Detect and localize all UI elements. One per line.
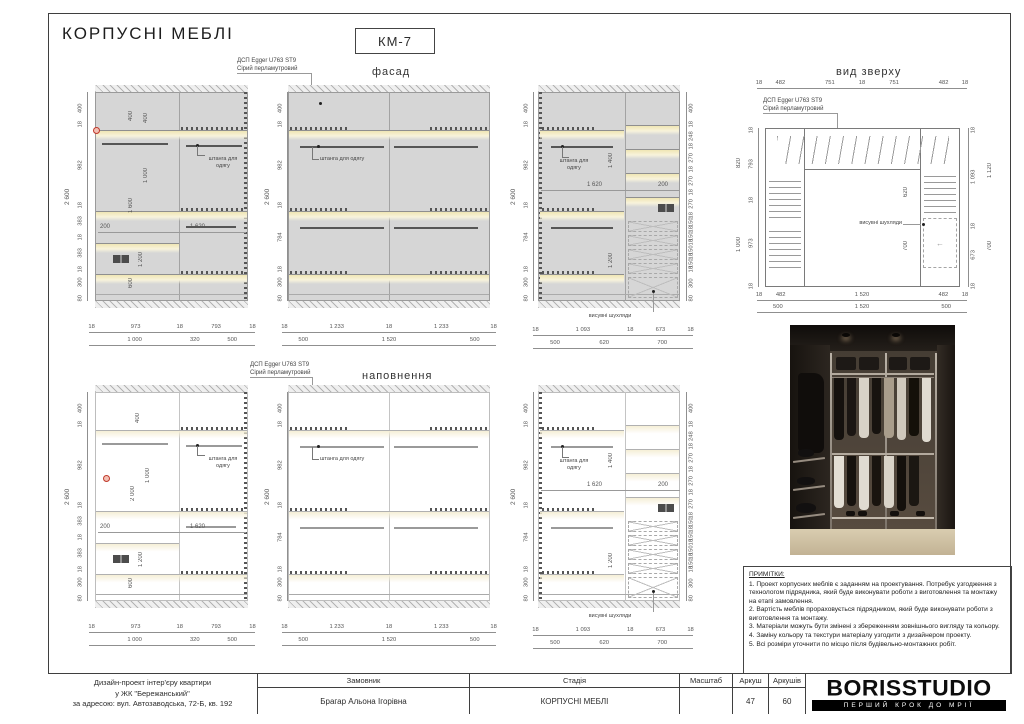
shelf-line	[626, 425, 679, 435]
dimension-label: 18	[688, 328, 693, 335]
material-note: ДСП Egger U763 ST9 Сірий перламутровий	[250, 362, 310, 377]
dim-chain-bottom-2: 500620700	[533, 639, 693, 649]
clothes-rod	[394, 146, 478, 148]
dim-chain-left: 4001898218383183831830080	[76, 92, 88, 301]
shelf-led-band	[626, 149, 679, 159]
dimension-label: 1 093	[538, 328, 628, 335]
dimension-label: 673	[633, 328, 688, 335]
dimension-label: 500	[282, 638, 324, 645]
vertical-divider	[389, 92, 390, 301]
dimension-label: 18	[969, 284, 980, 287]
dimension-label: 673	[969, 227, 980, 284]
shelf-front-edge	[181, 127, 245, 130]
photo-floor	[790, 529, 955, 555]
dim-600: 600	[128, 565, 134, 601]
dim-620: 620	[903, 172, 909, 212]
dim-1000: 1 000	[736, 206, 742, 282]
shelf-line	[626, 449, 679, 459]
dimension-label: 620	[577, 341, 632, 348]
dimension-label: 1 233	[391, 625, 491, 632]
dim-chain-bottom-1: 181 0931867318	[533, 626, 693, 636]
dimension-label: 973	[94, 625, 177, 632]
dimension-label: 1 000	[89, 638, 180, 645]
facade-view-title: фасад	[372, 66, 410, 78]
dimension-label: 300	[76, 270, 87, 294]
dim-chain-bottom-2: 500620700	[533, 339, 693, 349]
shelf-led-band	[289, 130, 489, 140]
ceiling-hatch	[95, 385, 248, 392]
dimension-label: 482	[761, 293, 800, 300]
customer-cell: Замовник Брагар Альона Ігорівна	[258, 674, 470, 714]
shelf-front-edge	[290, 508, 348, 511]
elevation-facade-3: 2 600 40018982187841830080 1 400 1 620 2…	[505, 85, 720, 365]
floor-hatch	[95, 601, 248, 608]
dimension-label: 793	[182, 325, 250, 332]
photo-hanging-coat	[798, 373, 824, 453]
project-description: Дизайн-проект інтер'єру квартириу ЖК "Бе…	[48, 674, 258, 714]
logo-text: BORISSTUDIO	[826, 678, 991, 700]
dim-1400: 1 400	[608, 133, 614, 188]
cabinet-body	[95, 392, 248, 601]
photo-panel	[830, 353, 832, 529]
dimension-label: 400	[276, 92, 287, 124]
photo-shelf	[832, 373, 934, 375]
dimension-label: 482	[761, 81, 800, 88]
dimension-label: 784	[522, 506, 533, 569]
material-line1: ДСП Egger U763 ST9	[250, 362, 310, 370]
photo-render	[790, 325, 955, 555]
side-wall-edge	[539, 92, 542, 301]
rod-label: штанга для одягу	[549, 458, 599, 471]
dimension-label: 18	[963, 81, 967, 88]
shelf-led-band	[289, 211, 489, 221]
scale-value	[680, 688, 732, 714]
dimension-label: 400	[687, 392, 698, 424]
total-height-dim: 2 600	[64, 392, 71, 601]
leader-line	[312, 147, 319, 160]
dim-line	[98, 232, 246, 233]
project-line: Дизайн-проект інтер'єру квартири	[48, 678, 257, 689]
clothes-rod	[102, 443, 168, 445]
photo-storage-box	[859, 357, 879, 370]
dimension-label: 982	[276, 126, 287, 205]
clothes-rod	[551, 227, 613, 229]
total-height-dim: 2 600	[64, 92, 71, 301]
dimension-label: 1 520	[324, 338, 453, 345]
clothes-rod	[102, 143, 168, 145]
dimension-label: 80	[76, 595, 87, 601]
dim-1120: 1 120	[987, 136, 993, 204]
clothes-rod	[186, 445, 242, 447]
dimension-label: 982	[522, 426, 533, 505]
dimension-label: 751	[864, 81, 924, 88]
side-wall-edge	[539, 392, 542, 601]
dimension-label: 500	[533, 641, 577, 648]
sheet-title: КОРПУСНІ МЕБЛІ	[62, 24, 234, 44]
dim-1200: 1 200	[138, 235, 144, 283]
drawers-label-text: висувні шухляди	[560, 613, 660, 620]
photo-storage-box	[836, 357, 856, 370]
dimension-label: 383	[76, 206, 87, 237]
dim-820: 820	[736, 132, 742, 194]
shelf-led-band	[96, 211, 247, 221]
dim-chain-bottom-2: 5001 520500	[757, 303, 967, 313]
note-item: 4. Заміну кольору та текстури матеріалу …	[749, 632, 1006, 641]
shelf-front-edge	[542, 571, 594, 574]
drawer-box	[628, 521, 678, 532]
dimension-label: 80	[522, 295, 533, 301]
dimension-label: 18	[963, 293, 967, 300]
dimension-label: 80	[522, 595, 533, 601]
rod-label: штанга для одягу	[200, 456, 246, 469]
dimension-label: 500	[454, 338, 496, 345]
dim-200: 200	[658, 182, 668, 188]
elevation-filling-3: 2 600 40018982187841830080 1 400 1 620 2…	[505, 385, 720, 665]
drawer-box	[628, 563, 678, 574]
shelf-front-edge	[290, 127, 348, 130]
dim-line	[98, 532, 246, 533]
dim-chain-left: 40018982187841830080	[522, 92, 534, 301]
dimension-label: 784	[276, 206, 287, 269]
dim-700: 700	[903, 226, 909, 266]
dim-400: 400	[135, 401, 141, 435]
photo-garment	[884, 378, 894, 438]
dim-1000: 1 000	[143, 145, 149, 205]
dimension-label: 80	[687, 595, 698, 601]
leader-line	[312, 447, 319, 460]
dimension-label: 300	[76, 570, 87, 594]
photo-panel	[935, 353, 937, 529]
dim-1620: 1 620	[190, 524, 205, 530]
dimension-label: 300	[276, 270, 287, 294]
dim-line	[541, 190, 680, 191]
photo-garment	[884, 456, 894, 508]
dimension-label: 973	[747, 202, 758, 284]
material-line2: Сірий перламутровий	[237, 66, 297, 74]
ceiling-hatch	[538, 385, 680, 392]
dimension-label: 400	[276, 392, 287, 424]
dim-chain-right: 4001824818270182701827018150181501815018…	[686, 392, 698, 601]
drawer-box	[628, 263, 678, 274]
project-line: у ЖК "Бережанський"	[48, 689, 257, 700]
photo-storage-box	[910, 357, 930, 370]
clothes-rod	[300, 227, 384, 229]
leader-line	[653, 593, 654, 612]
dimension-label: 80	[76, 295, 87, 301]
sheet-cell: Аркуш 47	[733, 674, 769, 714]
photo-garment	[859, 456, 869, 510]
dimension-label: 300	[522, 570, 533, 594]
material-note: ДСП Egger U763 ST9 Сірий перламутровий	[237, 58, 297, 73]
rod-label: штанга для одягу	[200, 156, 246, 169]
dimension-label: 1 520	[799, 305, 926, 312]
shelf-line	[626, 473, 679, 483]
drawers-label-text: висувні шухляди	[830, 220, 902, 227]
shelf-line	[96, 574, 247, 584]
dimension-label: 1 520	[800, 293, 924, 300]
rod-label-line1: штанга для	[200, 456, 246, 463]
leader-line	[903, 224, 921, 225]
shelf-front-edge	[181, 208, 245, 211]
elevation-facade-2: 2 600 40018982187841830080 штанга для од…	[262, 85, 505, 365]
vertical-divider	[179, 92, 180, 301]
shelf-front-edge	[430, 208, 488, 211]
customer-name: Брагар Альона Ігорівна	[258, 688, 469, 714]
dimension-label: 784	[276, 506, 287, 569]
elevation-filling-2: 2 600 40018982187841830080 штанга для од…	[262, 385, 505, 665]
shelf-led-band	[540, 211, 624, 221]
clothes-rod	[186, 145, 242, 147]
dim-200: 200	[100, 224, 110, 230]
shelf-led-band	[289, 274, 489, 284]
leader-dot	[319, 102, 322, 105]
photo-hat	[798, 449, 814, 457]
plinth-line	[96, 594, 247, 595]
side-wall-edge	[244, 392, 247, 601]
shelf-front-edge	[181, 571, 245, 574]
rod-label-line1: штанга для	[200, 156, 246, 163]
cabinet-body	[95, 92, 248, 301]
floor-hatch	[95, 301, 248, 308]
dimension-label: 500	[209, 638, 255, 645]
title-block: Дизайн-проект інтер'єру квартириу ЖК "Бе…	[48, 673, 1012, 714]
dimension-label: 1 233	[287, 325, 387, 332]
photo-garment	[872, 456, 881, 506]
dim-1620: 1 620	[587, 182, 602, 188]
shelf-line	[289, 511, 489, 521]
dimension-label: 1 233	[287, 625, 387, 632]
shelf-front-edge	[290, 271, 348, 274]
dimension-label: 700	[631, 341, 693, 348]
dimension-label: 383	[76, 538, 87, 569]
photo-shoe-shelf	[832, 517, 934, 519]
dim-chain-left: 40018982187841830080	[276, 92, 288, 301]
dim-400: 400	[143, 101, 149, 135]
dim-200: 200	[658, 482, 668, 488]
dimension-label: 500	[282, 338, 324, 345]
clothes-rod	[300, 527, 384, 529]
photo-shoes	[890, 511, 899, 516]
shelf-front-edge	[542, 271, 594, 274]
leader-line	[197, 146, 205, 156]
clothes-rod	[394, 446, 478, 448]
dimension-label: 300	[687, 271, 698, 295]
note-item: 1. Проект корпусних меблів є заданням на…	[749, 581, 1006, 607]
drawer-box	[628, 249, 678, 260]
shelf-line	[96, 511, 247, 521]
sheet-label: Аркуш	[733, 674, 768, 688]
dimension-label: 500	[454, 638, 496, 645]
dim-chain-bottom-1: 181 233181 23318	[282, 323, 496, 333]
dim-600: 600	[128, 265, 134, 301]
clothes-rod	[394, 527, 478, 529]
drawers-label: висувні шухляди	[830, 220, 902, 227]
drawers-label: висувні шухляди	[560, 613, 660, 620]
dimension-label: 751	[800, 81, 860, 88]
leader-line	[562, 147, 569, 158]
shelf-front-edge	[181, 508, 245, 511]
shelf-led-band	[626, 173, 679, 183]
elevation-facade-1: 2 600 4001898218383183831830080 400 400 …	[60, 85, 265, 365]
reference-marker	[93, 127, 100, 134]
dimension-label: 1 233	[391, 325, 491, 332]
dim-chain-bottom-1: 189731879318	[89, 323, 255, 333]
photo-spotlight	[842, 333, 850, 337]
dimension-label: 400	[76, 392, 87, 424]
studio-logo: BORISSTUDIO ПЕРШИЙ КРОК ДО МРІЇ	[806, 674, 1012, 714]
dim-chain-bottom-1: 181 0931867318	[533, 326, 693, 336]
drawer-box	[628, 235, 678, 246]
plan-folded-clothes	[924, 175, 956, 213]
rod-label-line: штанга для одягу	[320, 156, 384, 163]
dim-chain-right: 181 0931867318	[968, 128, 980, 287]
shelf-line	[96, 430, 247, 440]
clothes-rod	[394, 227, 478, 229]
vertical-divider	[389, 392, 390, 601]
dim-chain-bottom-1: 184821 52048218	[757, 291, 967, 301]
dimension-label: 1 093	[538, 628, 628, 635]
photo-garment	[922, 378, 931, 442]
socket	[658, 204, 674, 212]
dimension-label: 383	[76, 238, 87, 269]
sheets-cell: Аркушів 60	[769, 674, 806, 714]
dimension-label: 400	[522, 392, 533, 424]
drawing-code: КМ-7	[378, 34, 412, 49]
dimension-label: 784	[522, 206, 533, 269]
dimension-label: 673	[633, 628, 688, 635]
leader-line	[653, 293, 654, 312]
dim-1620: 1 620	[587, 482, 602, 488]
dimension-label: 1 520	[324, 638, 453, 645]
rod-label-line2: одягу	[200, 463, 246, 470]
shelf-line	[289, 430, 489, 440]
dimension-label: 270	[687, 147, 698, 169]
stage-cell: Стадія КОРПУСНІ МЕБЛІ	[470, 674, 680, 714]
rod-label-line2: одягу	[549, 165, 599, 172]
vertical-divider	[179, 392, 180, 601]
dimension-label: 18	[491, 325, 496, 332]
photo-garment	[834, 456, 844, 508]
dim-1600: 1 600	[128, 175, 134, 235]
dim-line	[541, 490, 680, 491]
drawing-page: КОРПУСНІ МЕБЛІ КМ-7 фасад вид зверху нап…	[0, 0, 1024, 724]
photo-shoes	[846, 511, 855, 516]
dimension-label: 620	[577, 641, 632, 648]
dimension-label: 18	[688, 628, 693, 635]
plan-hanging-clothes	[777, 136, 949, 164]
drawers-label-text: висувні шухляди	[560, 313, 660, 320]
shelf-front-edge	[542, 208, 594, 211]
shelf-front-edge	[542, 427, 594, 430]
dim-chain-bottom-2: 5001 520500	[282, 636, 496, 646]
plinth-line	[96, 294, 247, 295]
shelf-front-edge	[430, 127, 488, 130]
photo-garment	[872, 378, 881, 434]
dim-chain-left: 40018982187841830080	[276, 392, 288, 601]
total-height-dim: 2 600	[264, 92, 271, 301]
dimension-label: 982	[76, 126, 87, 205]
ceiling-hatch	[538, 85, 680, 92]
photo-garment	[897, 378, 906, 440]
photo-clothes-row	[834, 378, 931, 442]
dimension-label: 383	[76, 506, 87, 537]
photo-spotlight	[892, 333, 900, 337]
dimension-label: 982	[522, 126, 533, 205]
dimension-label: 500	[533, 341, 577, 348]
shelf-front-edge	[430, 427, 488, 430]
dim-1200: 1 200	[138, 535, 144, 583]
plinth-line	[289, 594, 489, 595]
drawer-box	[628, 221, 678, 232]
shelf-led-band	[626, 125, 679, 135]
photo-hat	[797, 477, 815, 485]
sheets-label: Аркушів	[769, 674, 805, 688]
shelf-front-edge	[290, 208, 348, 211]
dimension-label: 300	[276, 570, 287, 594]
dimension-label: 18	[747, 284, 758, 287]
dim-chain-bottom-1: 189731879318	[89, 623, 255, 633]
dimension-label: 320	[180, 338, 209, 345]
shelf-front-edge	[290, 427, 348, 430]
plinth-line	[289, 294, 489, 295]
clothes-rod	[551, 527, 613, 529]
dim-200: 200	[100, 524, 110, 530]
sheet-number: 47	[733, 688, 768, 714]
dim-chain-left: 187931897318	[747, 128, 759, 287]
dim-chain-left: 40018982187841830080	[522, 392, 534, 601]
shelf-led-band	[96, 130, 247, 140]
photo-garment	[897, 456, 906, 511]
stage-value: КОРПУСНІ МЕБЛІ	[470, 688, 679, 714]
total-height-dim: 2 600	[510, 92, 517, 301]
photo-shelf	[832, 453, 934, 455]
dim-1400: 1 400	[608, 433, 614, 488]
leader-line	[250, 377, 312, 378]
material-line1: ДСП Egger U763 ST9	[763, 98, 823, 106]
reference-marker	[103, 475, 110, 482]
dimension-label: 400	[522, 92, 533, 124]
dimension-label: 300	[522, 270, 533, 294]
ceiling-hatch	[288, 85, 490, 92]
shelf-line	[540, 511, 624, 521]
sheets-total: 60	[769, 688, 805, 714]
scale-label: Масштаб	[680, 674, 732, 688]
rod-label-line1: штанга для	[549, 458, 599, 465]
drawer-box	[628, 535, 678, 546]
dimension-label: 500	[757, 305, 799, 312]
shelf-line	[289, 574, 489, 584]
socket	[113, 255, 129, 263]
plan-folded-clothes	[769, 178, 801, 218]
material-note: ДСП Egger U763 ST9 Сірий перламутровий	[763, 98, 823, 113]
stage-label: Стадія	[470, 674, 679, 688]
photo-garment	[859, 378, 869, 438]
drawers-label: висувні шухляди	[560, 313, 660, 320]
dimension-label: 300	[687, 571, 698, 595]
socket	[658, 504, 674, 512]
shelf-front-edge	[542, 127, 594, 130]
ceiling-hatch	[95, 85, 248, 92]
side-wall-edge	[244, 92, 247, 301]
shelf-front-edge	[181, 271, 245, 274]
photo-clothes-row	[834, 456, 919, 511]
dim-1620: 1 620	[190, 224, 205, 230]
photo-right-wall	[937, 345, 955, 531]
floor-hatch	[288, 301, 490, 308]
dimension-label: 400	[687, 92, 698, 124]
photo-storage-box	[889, 357, 907, 370]
shelf-front-edge	[290, 571, 348, 574]
